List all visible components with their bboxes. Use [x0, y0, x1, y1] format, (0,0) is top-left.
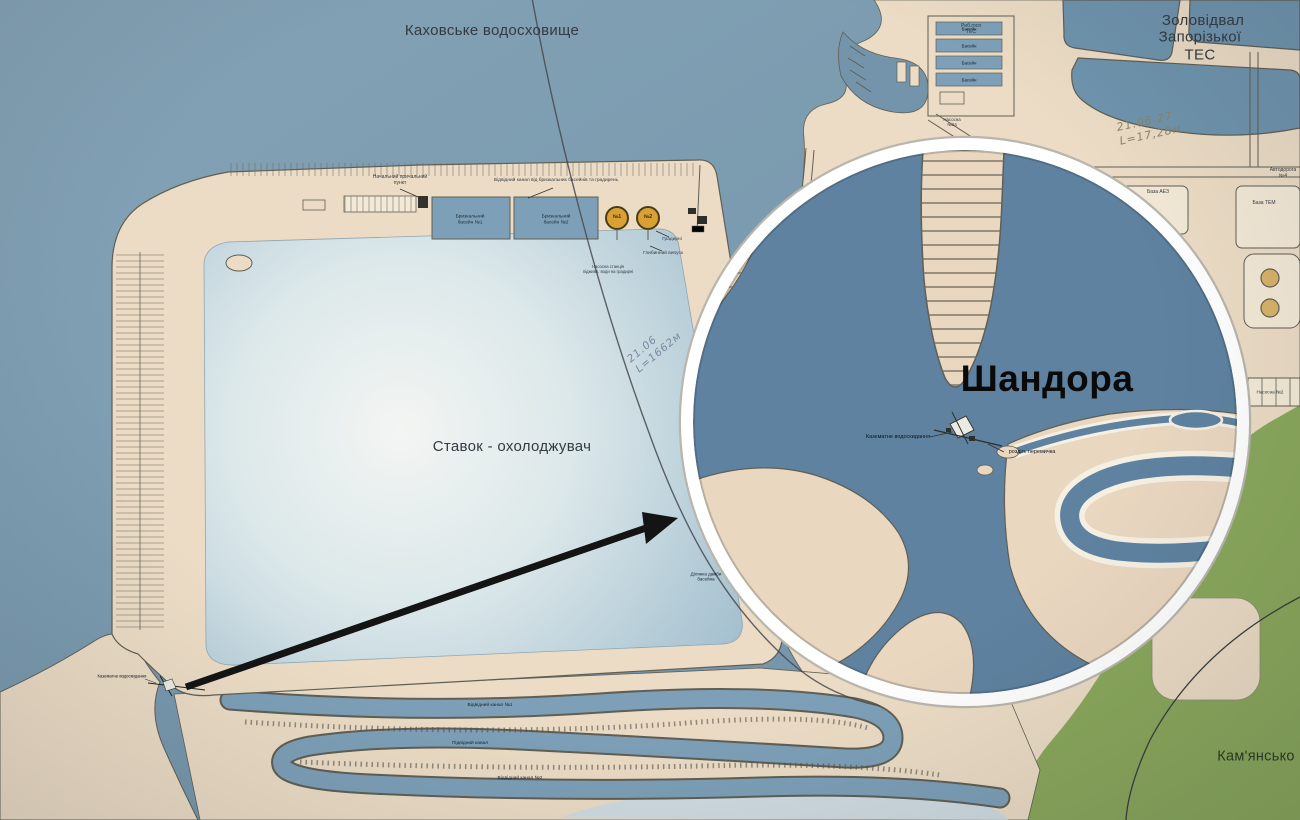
small-island — [226, 255, 252, 271]
cooling-tower-1 — [606, 207, 628, 229]
cooling-tower-2 — [637, 207, 659, 229]
map-artwork — [0, 0, 1300, 820]
cooling-pond-water — [204, 229, 742, 665]
scheme-map: Каховське водосховище Золовідвал Запоріз… — [0, 0, 1300, 820]
spray-basin-1 — [432, 197, 510, 239]
inset-magnifier — [680, 137, 1250, 707]
north-dam-hatch — [230, 163, 698, 176]
